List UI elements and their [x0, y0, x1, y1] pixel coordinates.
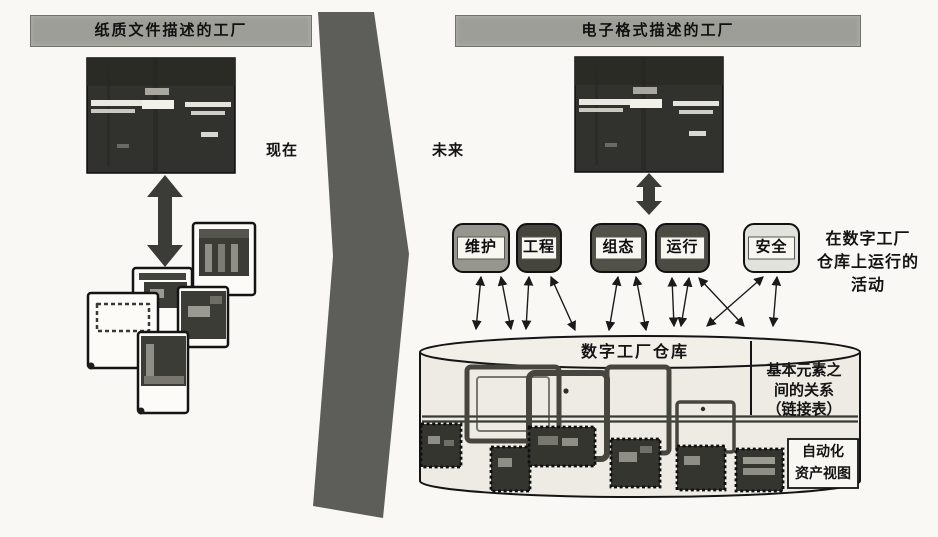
button-engineering: 工程	[516, 223, 562, 273]
button-maintenance: 维护	[452, 223, 510, 273]
now-future-divider-band	[313, 12, 409, 518]
button-maintenance-label: 维护	[457, 237, 505, 260]
button-engineering-label: 工程	[521, 237, 557, 260]
paper-sheet	[193, 223, 256, 297]
assets-label: 自动化 资产视图	[789, 442, 857, 485]
left-exchange-arrow-icon	[147, 175, 183, 267]
paper-sheet	[138, 332, 189, 415]
activity-link-arrows	[476, 277, 777, 330]
right-panel-header: 电子格式描述的工厂	[455, 15, 861, 47]
frame-dot	[701, 407, 705, 411]
left-factory-photo	[87, 58, 235, 173]
relations-label: 基本元素之 间的关系 （链接表）	[753, 362, 855, 421]
warehouse-title: 数字工厂仓库	[560, 338, 710, 362]
figure-canvas: 纸质文件描述的工厂 电子格式描述的工厂 现在 未来 维护 工程 组态 运行 安全…	[0, 0, 938, 537]
left-panel-header: 纸质文件描述的工厂	[30, 15, 312, 47]
now-label: 现在	[254, 139, 310, 160]
button-safety-label: 安全	[748, 237, 795, 260]
button-safety: 安全	[743, 223, 800, 273]
right-exchange-arrow-icon	[636, 173, 662, 215]
button-operation-label: 运行	[660, 237, 705, 260]
button-configuration: 组态	[590, 223, 647, 273]
button-operation: 运行	[655, 223, 710, 273]
right-factory-photo	[575, 57, 723, 172]
button-configuration-label: 组态	[595, 237, 642, 260]
frame-dot	[563, 388, 568, 393]
activities-note: 在数字工厂 仓库上运行的 活动	[798, 228, 938, 298]
future-label: 未来	[420, 139, 476, 160]
